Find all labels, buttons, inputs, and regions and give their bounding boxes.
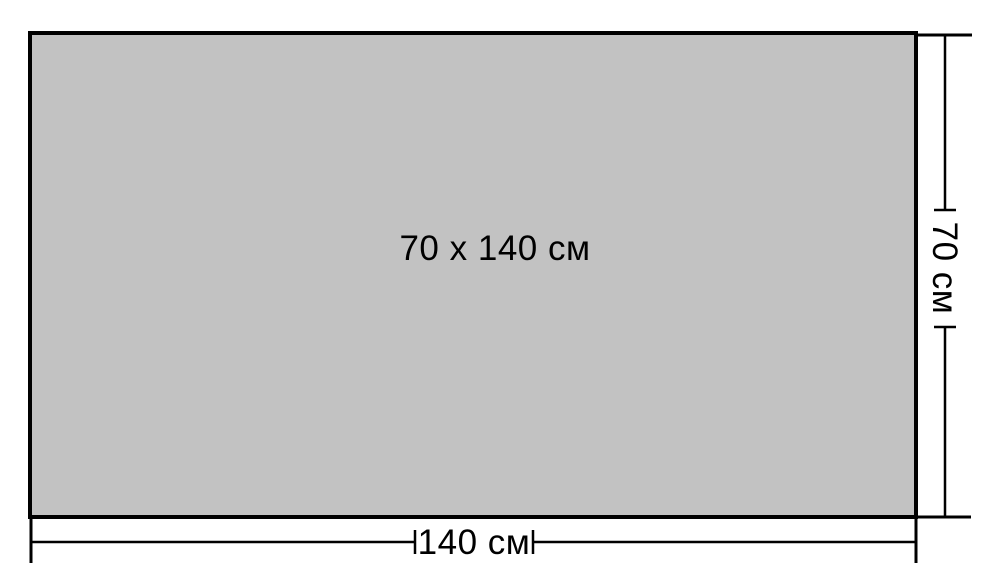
product-rectangle — [30, 33, 916, 517]
diagram-svg: 70 x 140 см 140 см 70 см — [0, 0, 1000, 582]
diagram-lines — [30, 33, 972, 563]
height-dimension-label: 70 см — [925, 222, 964, 315]
size-label: 70 x 140 см — [399, 229, 590, 268]
dimension-diagram: 70 x 140 см 140 см 70 см — [0, 0, 1000, 582]
width-dimension-label: 140 см — [418, 523, 531, 562]
